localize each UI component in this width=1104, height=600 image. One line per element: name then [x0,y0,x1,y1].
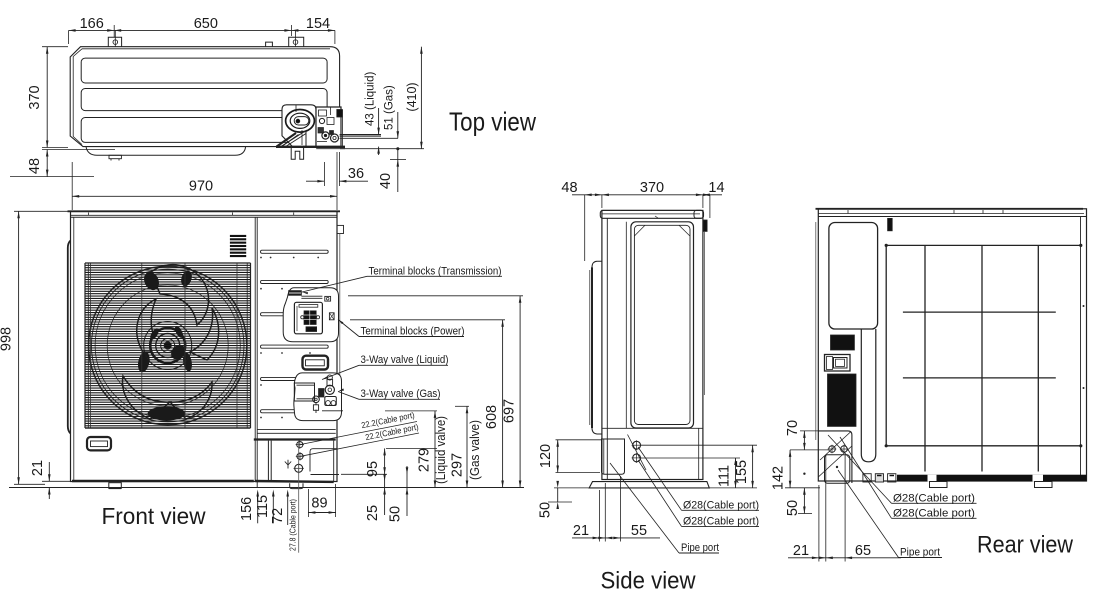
svg-text:40: 40 [378,173,394,189]
svg-text:Ø28(Cable port): Ø28(Cable port) [893,492,975,504]
svg-text:50: 50 [538,502,554,518]
svg-text:142: 142 [771,466,787,490]
svg-text:50: 50 [785,500,801,516]
svg-text:115: 115 [255,495,271,518]
svg-text:70: 70 [785,420,801,436]
svg-text:297: 297 [450,453,466,477]
svg-text:Ø28(Cable port): Ø28(Cable port) [893,507,975,519]
svg-text:Terminal blocks (Transmission): Terminal blocks (Transmission) [369,265,502,277]
svg-text:279: 279 [417,448,433,472]
svg-text:(Liquid valve): (Liquid valve) [433,416,448,484]
svg-text:50: 50 [388,506,404,522]
svg-text:14: 14 [708,180,724,196]
svg-text:Terminal blocks (Power): Terminal blocks (Power) [361,325,465,337]
svg-text:3-Way valve (Gas): 3-Way valve (Gas) [361,388,441,400]
svg-text:72: 72 [270,508,286,524]
svg-text:21: 21 [573,523,589,539]
svg-text:21: 21 [793,543,809,559]
svg-text:Ø28(Cable port): Ø28(Cable port) [683,515,759,527]
svg-text:(Gas valve): (Gas valve) [467,420,482,480]
svg-text:(410): (410) [405,82,419,111]
svg-text:51 (Gas): 51 (Gas) [384,85,396,130]
svg-text:25: 25 [365,505,381,521]
svg-text:155: 155 [734,460,750,484]
svg-text:Pipe port: Pipe port [900,547,940,559]
svg-text:650: 650 [194,16,218,32]
svg-text:21: 21 [30,460,46,476]
svg-text:166: 166 [80,16,104,32]
svg-text:Rear view: Rear view [977,532,1074,559]
svg-text:154: 154 [306,16,330,32]
svg-text:48: 48 [561,180,577,196]
svg-text:Pipe port: Pipe port [681,542,719,554]
svg-text:697: 697 [502,399,518,423]
svg-text:Top view: Top view [449,107,536,137]
svg-text:370: 370 [27,85,43,109]
svg-text:120: 120 [538,444,554,468]
svg-text:3-Way valve (Liquid): 3-Way valve (Liquid) [361,354,449,366]
svg-text:156: 156 [239,497,255,521]
svg-text:Ø28(Cable port): Ø28(Cable port) [683,499,759,511]
svg-text:370: 370 [640,180,664,196]
svg-text:998: 998 [0,327,15,351]
svg-text:48: 48 [27,158,43,174]
svg-text:43 (Liquid): 43 (Liquid) [365,71,377,126]
svg-text:Side view: Side view [601,568,697,595]
svg-text:27.8 (Cable port): 27.8 (Cable port) [289,499,298,551]
svg-text:65: 65 [855,543,871,559]
svg-text:55: 55 [631,523,647,539]
svg-text:111: 111 [717,465,733,487]
svg-text:36: 36 [348,166,364,182]
svg-text:Front view: Front view [102,503,206,529]
svg-text:89: 89 [311,496,327,512]
svg-text:608: 608 [484,405,500,429]
svg-text:970: 970 [189,179,213,195]
svg-text:95: 95 [365,461,381,477]
